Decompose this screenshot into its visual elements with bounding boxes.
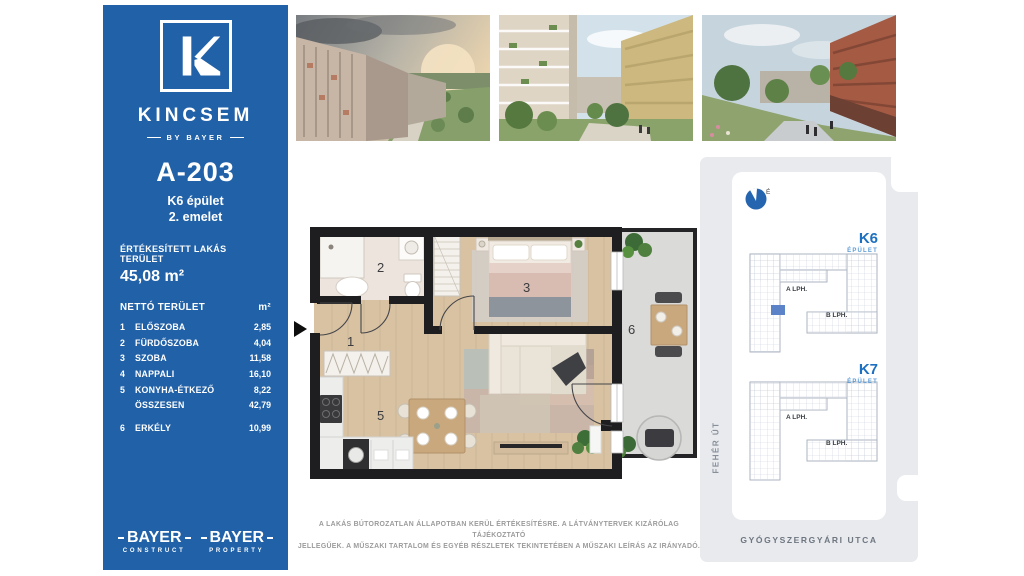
footer-logos: BAYER CONSTRUCT BAYER PROPERTY [103,529,288,554]
floor-plan: 1 2 3 5 6 [292,222,704,484]
unit-building: K6 épület [167,194,223,210]
k7-stair-b-label: B LPH. [826,440,848,447]
room-label-eloszoba: 1 [347,334,354,349]
kincsem-logo [160,20,232,92]
sidebar: KINCSEM BY BAYER A-203 K6 épület 2. emel… [103,5,288,570]
table-row: 2 FÜRDŐSZOBA 4,04 [120,338,271,348]
table-header-unit: m² [258,302,271,313]
unit-highlight [771,305,785,315]
logo-bar [267,537,273,539]
table-row: 3 SZOBA 11,58 [120,353,271,363]
byline-dash-right [230,137,244,139]
render-photo-courtyard [499,15,693,141]
table-row: 5 KONYHA-ÉTKEZŐ 8,22 [120,385,271,395]
room-label-konyha: 5 [377,408,384,423]
map-driveway-notch [897,475,925,501]
tv [500,444,562,448]
unit-floor: 2. emelet [169,210,223,226]
bedroom-wardrobe [434,235,460,296]
logo-bar [118,537,124,539]
net-area-table-header: NETTÓ TERÜLET m² [120,302,271,313]
building-k6: A LPH. B LPH. K6 ÉPÜLET [750,230,878,352]
logo-bar [201,537,207,539]
compass-north-icon: É [746,187,772,210]
street-label-gyogyszergyari-utca: GYÓGYSZERGYÁRI UTCA [700,535,918,545]
table-row-balcony: 6 ERKÉLY 10,99 [120,423,271,433]
brand-name: KINCSEM [138,105,254,127]
sold-area-label: ÉRTÉKESÍTETT LAKÁS TERÜLET [120,244,271,264]
k-monogram-icon [171,31,221,81]
site-map-drawing: É A LPH. [732,172,886,520]
map-street-notch [891,150,925,192]
k6-stair-a-label: A LPH. [786,286,807,293]
unit-code: A-203 [156,157,235,188]
bayer-property-logo: BAYER PROPERTY [201,529,274,554]
disclaimer: A LAKÁS BÚTOROZATLAN ÁLLAPOTBAN KERÜL ÉR… [294,519,704,552]
table-header-label: NETTÓ TERÜLET [120,302,205,313]
k7-subtitle: ÉPÜLET [847,377,878,385]
k7-stair-a-label: A LPH. [786,414,807,421]
table-row: 1 ELŐSZOBA 2,85 [120,322,271,332]
sold-area-value: 45,08 m² [120,268,271,286]
render-photo-street [702,15,896,141]
site-map-panel: É A LPH. [700,157,918,562]
byline-dash-left [147,137,161,139]
table-row: 4 NAPPALI 16,10 [120,369,271,379]
render-photo-aerial [296,15,490,141]
street-label-feher-ut: FEHÉR ÚT [700,392,732,502]
table-row-total: ÖSSZESEN 42,79 [120,400,271,410]
balcony-table [651,305,687,345]
k7-title: K7 [859,361,878,378]
entrance-arrow-icon [294,321,307,337]
net-area-table: NETTÓ TERÜLET m² 1 ELŐSZOBA 2,85 2 FÜRDŐ… [103,302,288,439]
bayer-construct-logo: BAYER CONSTRUCT [118,529,191,554]
building-k7: A LPH. B LPH. K7 ÉPÜLET [750,361,878,480]
bedroom-furniture [472,236,588,322]
k6-stair-b-label: B LPH. [826,312,848,319]
hall-wardrobe [324,351,390,376]
logo-bar [185,537,191,539]
room-label-szoba: 3 [523,280,530,295]
disclaimer-line-1: A LAKÁS BÚTOROZATLAN ÁLLAPOTBAN KERÜL ÉR… [294,519,704,541]
svg-text:É: É [766,187,771,196]
k6-title: K6 [859,230,878,247]
room-label-erkely: 6 [628,322,635,337]
disclaimer-line-2: JELLEGŰEK. A MŰSZAKI TARTALOM ÉS EGYÉB R… [294,541,704,552]
room-label-furdoszoba: 2 [377,260,384,275]
sold-area-block: ÉRTÉKESÍTETT LAKÁS TERÜLET 45,08 m² [103,244,288,286]
k6-subtitle: ÉPÜLET [847,246,878,254]
brand-byline: BY BAYER [147,133,245,142]
site-map-card: É A LPH. [732,172,886,520]
